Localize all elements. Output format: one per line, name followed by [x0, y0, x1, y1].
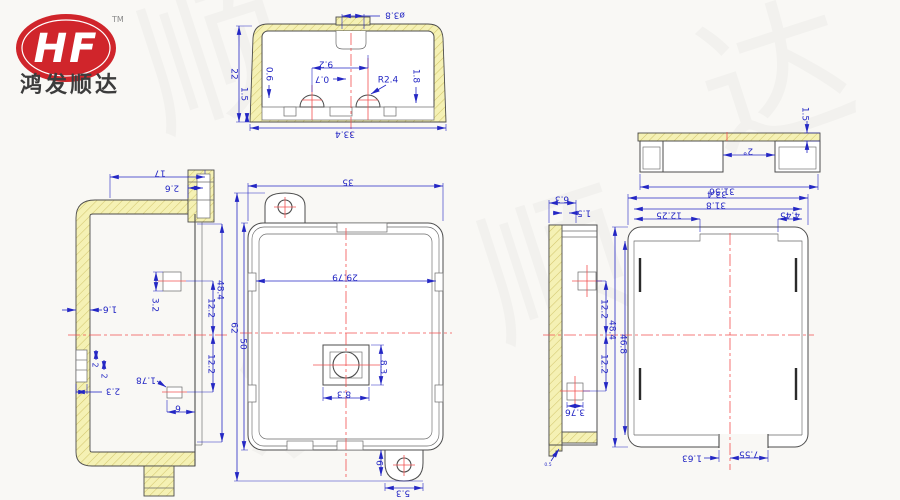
dim-label-step-a: 2 [91, 362, 100, 367]
leader [157, 381, 166, 387]
dim-label-inner-width: 29.79 [332, 272, 358, 282]
dim-label-step-b: 2 [100, 373, 109, 378]
rim-recess [330, 107, 352, 116]
dim-label-rim: 1.5 [577, 208, 591, 218]
boss-lower [167, 387, 182, 398]
dim-label-boss2: 1.78 [136, 375, 156, 385]
top-latch [337, 223, 387, 232]
dim-label-slot-offset: 1.63 [682, 453, 702, 463]
rim-recess [284, 107, 296, 116]
dim-label-body-height: 50 [238, 338, 248, 350]
dim-label-edge-gap: 6 [175, 403, 181, 413]
bottom-slot-gap [719, 434, 768, 449]
dim-label-upper-offset: 12.2 [206, 298, 216, 318]
dim-label-flange-right: 4.45 [780, 210, 800, 220]
dim-label-flange-left: 12.25 [656, 210, 682, 220]
bottom-tab-hatch [144, 466, 174, 496]
dim-label-lower-offset: 12.2 [599, 354, 609, 374]
dim-label-inner-width: 31.8 [706, 200, 726, 210]
dim-label-overall-height: 62 [229, 322, 239, 333]
dim-label-depth: 6.3 [555, 194, 569, 204]
dim-label-rim: 1.5 [800, 107, 810, 121]
company-name: 鸿发顺达 [20, 72, 120, 98]
side-slot [435, 273, 443, 291]
strip-end-block-left [640, 141, 663, 172]
dim-label-overall-height: 48.4 [607, 320, 617, 340]
dim-label-note: 0.5 [544, 462, 551, 468]
logo-tm: TM [111, 15, 124, 24]
dim-label-lower-offset: 12.2 [206, 354, 216, 374]
side-slot [435, 385, 443, 402]
left-side-view: 17 2.6 1.6 3.2 12.2 12.2 48.4 2 2 [62, 168, 228, 497]
dim-label-boss-height: 8.3 [378, 360, 388, 374]
section-view: ø3.8 22 1.5 0.6 9.2 0.7 R2.4 1.8 33.4 [229, 10, 447, 139]
strip-end-block-right [775, 141, 820, 172]
dim-label-slot-width: 7.55 [739, 449, 759, 459]
dim-label-inner-height: 46.8 [618, 334, 628, 354]
dim-label-wall: 1.6 [103, 304, 118, 314]
dim-label-foot: 1.5 [239, 87, 249, 101]
top-tab-face [197, 174, 210, 218]
channel-outline [628, 227, 808, 447]
dim-label-wall: 1.8 [411, 69, 421, 84]
strip-mid-panel [663, 141, 723, 172]
dim-label-tab-width: 2.6 [165, 183, 180, 193]
body-outline [248, 223, 443, 450]
dim-label-boss-height: 3.2 [150, 298, 160, 312]
rim-recess [384, 107, 396, 116]
channel-view: 33.4 31.8 12.25 4.45 48.4 46.8 1.63 7.55 [607, 189, 815, 471]
dim-label-overall: 48.4 [215, 280, 225, 300]
strip-rim-hatch [638, 133, 820, 141]
wall-notch [76, 350, 87, 382]
dim-label-radius: R2.4 [378, 76, 399, 86]
front-view: 35 29.79 62 50 8.3 8.3 6 5.3 [229, 177, 453, 498]
dim-label-tab-offset: 6 [374, 460, 384, 466]
dim-label-offset: 0.7 [315, 74, 329, 84]
company-logo: HF TM 鸿发顺达 [16, 14, 124, 98]
cad-drawing-sheet: 达 顺 发 顺 HF TM 鸿发顺达 ø3.8 [0, 0, 900, 500]
dim-label-width: 31.56 [709, 186, 735, 196]
bottom-latch [287, 441, 313, 450]
drawing-canvas: 达 顺 发 顺 HF TM 鸿发顺达 ø3.8 [0, 0, 900, 500]
dim-label-step-depth: 2.3 [106, 386, 120, 396]
dim-label-boss-width: 8.3 [337, 389, 351, 399]
side-wall-hatch [76, 200, 195, 466]
slab-bottom-hatch [562, 432, 597, 443]
dim-label-tab-width: 5.3 [396, 488, 410, 498]
dim-label-boss-width: 3.76 [565, 407, 585, 417]
dim-label-draft: 2° [743, 146, 753, 156]
dim-label-height: 22 [229, 68, 239, 79]
dim-label-upper-offset: 12.2 [599, 299, 609, 319]
logo-text: HF [34, 26, 99, 72]
dim-label-pitch: 9.2 [319, 59, 333, 69]
dim-label-diameter: ø3.8 [385, 10, 405, 20]
bottom-latch [337, 441, 363, 450]
dim-label-overall-width: 35 [342, 177, 353, 187]
dim-label-width: 33.4 [335, 129, 355, 139]
ext-line [153, 272, 163, 291]
dim-label-top-width: 17 [154, 168, 165, 178]
section-top-boss-hatch [336, 17, 370, 25]
side-slot [248, 273, 256, 291]
boss-upper [163, 272, 181, 291]
side-slot [248, 385, 256, 402]
dim-label-step: 0.6 [264, 67, 274, 82]
